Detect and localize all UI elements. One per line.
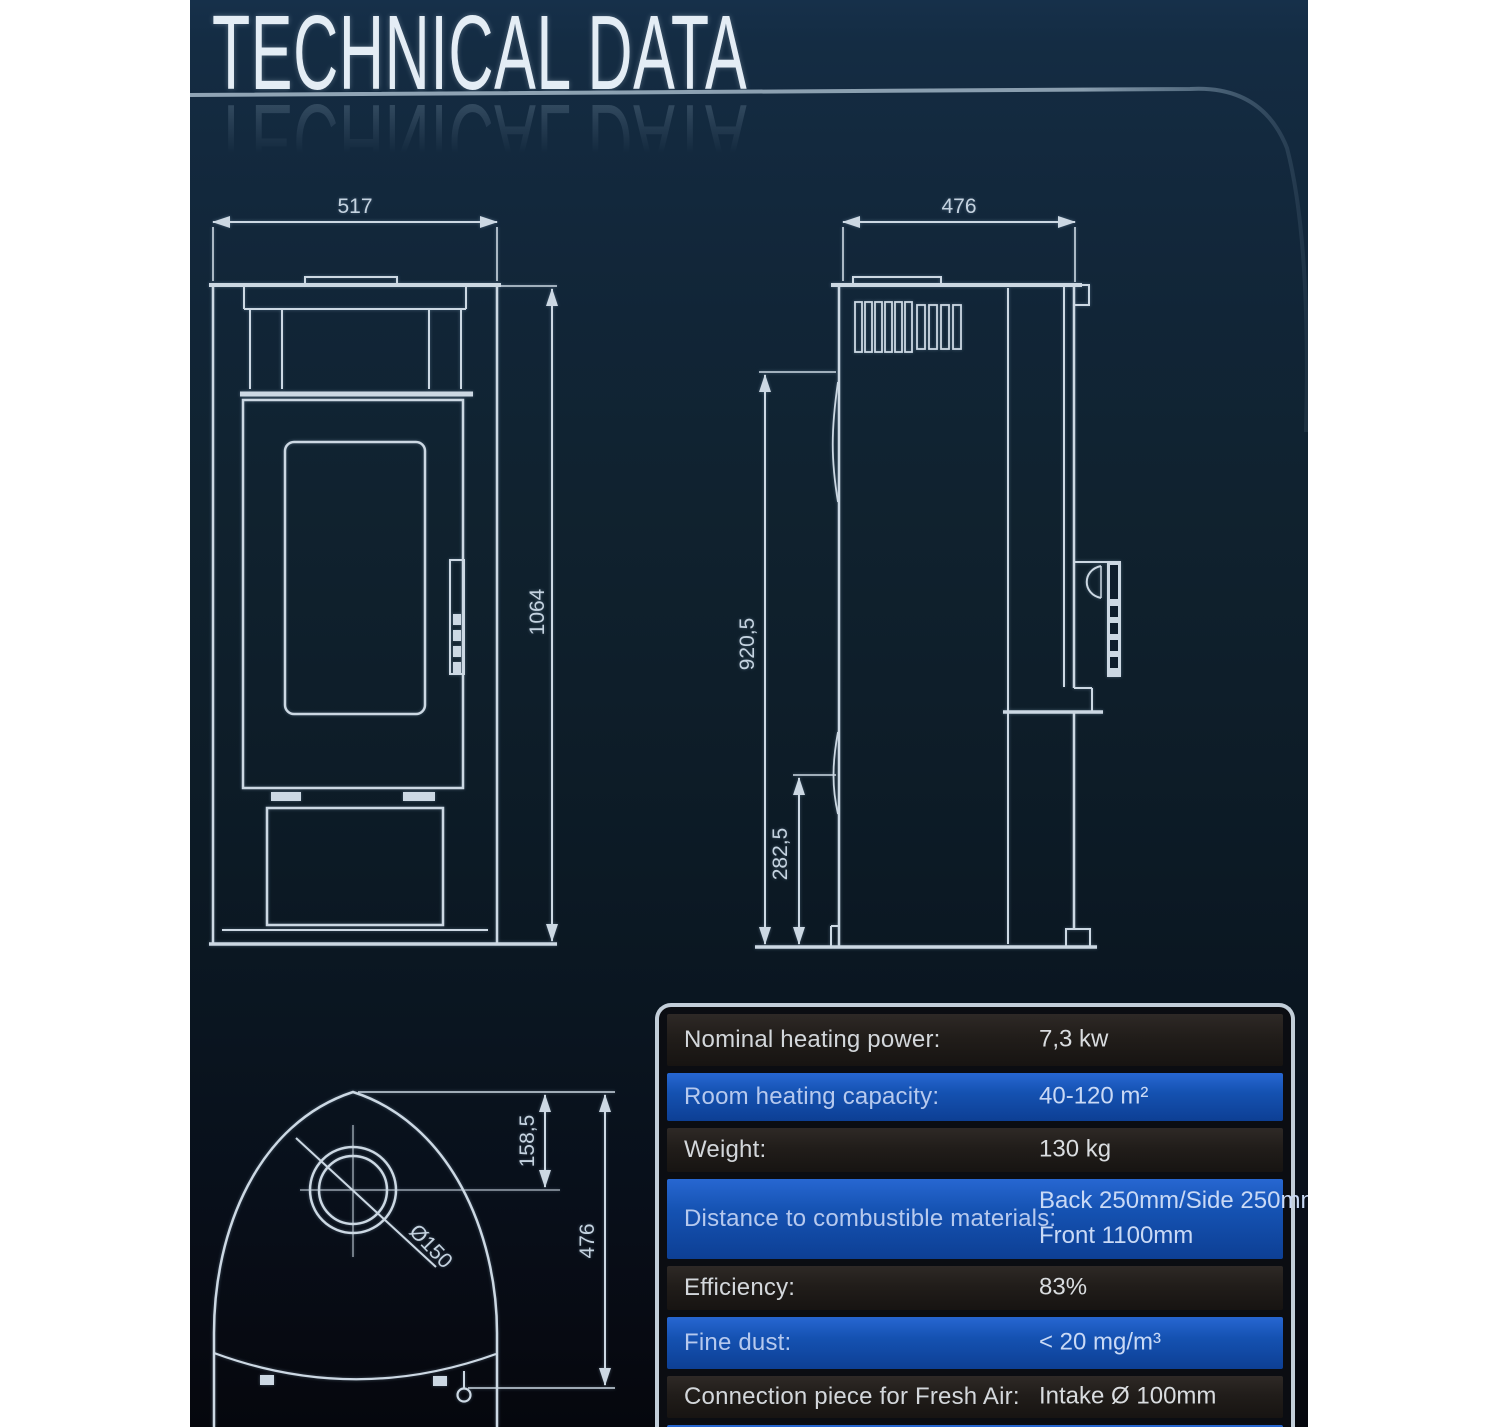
front-height-dim-label: 1064: [526, 588, 549, 635]
side-flue-height-dim-label: 920,5: [736, 618, 759, 671]
row-label: Nominal heating power:: [667, 1026, 941, 1054]
row-label: Weight:: [667, 1136, 766, 1164]
row-value: 83%: [1039, 1271, 1087, 1306]
row-value: 7,3 kw: [1039, 1023, 1108, 1058]
row-value-line-1: Back 250mm/Side 250mm/: [1039, 1184, 1308, 1219]
front-width-dim-label: 517: [337, 195, 372, 218]
spec-table: Nominal heating power: 7,3 kw Room heati…: [655, 1003, 1295, 1427]
table-row: Room heating capacity: 40-120 m²: [667, 1073, 1283, 1121]
table-row: Fine dust: < 20 mg/m³: [667, 1317, 1283, 1369]
row-label: Efficiency:: [667, 1274, 795, 1302]
side-intake-height-dim-label: 282,5: [769, 828, 792, 881]
front-view-drawing: 517 1064: [205, 182, 605, 962]
row-value: 130 kg: [1039, 1133, 1111, 1168]
table-row: Distance to combustible materials: Back …: [667, 1179, 1283, 1259]
top-depth-dim-label: 476: [576, 1223, 599, 1258]
row-value: < 20 mg/m³: [1039, 1326, 1161, 1361]
row-value: Back 250mm/Side 250mm/ Front 1100mm: [1039, 1184, 1308, 1254]
row-value-line-2: Front 1100mm: [1039, 1219, 1308, 1254]
row-label: Connection piece for Fresh Air:: [667, 1383, 1020, 1411]
table-row: Weight: 130 kg: [667, 1128, 1283, 1172]
table-row: Nominal heating power: 7,3 kw: [667, 1014, 1283, 1066]
page: TECHNICAL DATA TECHNICAL DATA: [0, 0, 1500, 1427]
row-value: Intake Ø 100mm: [1039, 1380, 1216, 1415]
row-label: Room heating capacity:: [667, 1083, 939, 1111]
side-depth-dim-label: 476: [941, 195, 976, 218]
top-view-drawing: Ø150 158,5 476: [200, 1075, 650, 1427]
top-flue-offset-dim-label: 158,5: [516, 1115, 539, 1168]
row-label: Distance to combustible materials:: [667, 1205, 1056, 1233]
content-panel: TECHNICAL DATA TECHNICAL DATA: [190, 0, 1308, 1427]
table-row: Connection piece for Fresh Air: Intake Ø…: [667, 1376, 1283, 1418]
page-title-reflection: TECHNICAL DATA: [212, 88, 747, 194]
table-row: Efficiency: 83%: [667, 1266, 1283, 1310]
side-view-drawing: 476 920,5 282,5: [735, 182, 1165, 962]
row-value: 40-120 m²: [1039, 1080, 1148, 1115]
row-label: Fine dust:: [667, 1329, 791, 1357]
